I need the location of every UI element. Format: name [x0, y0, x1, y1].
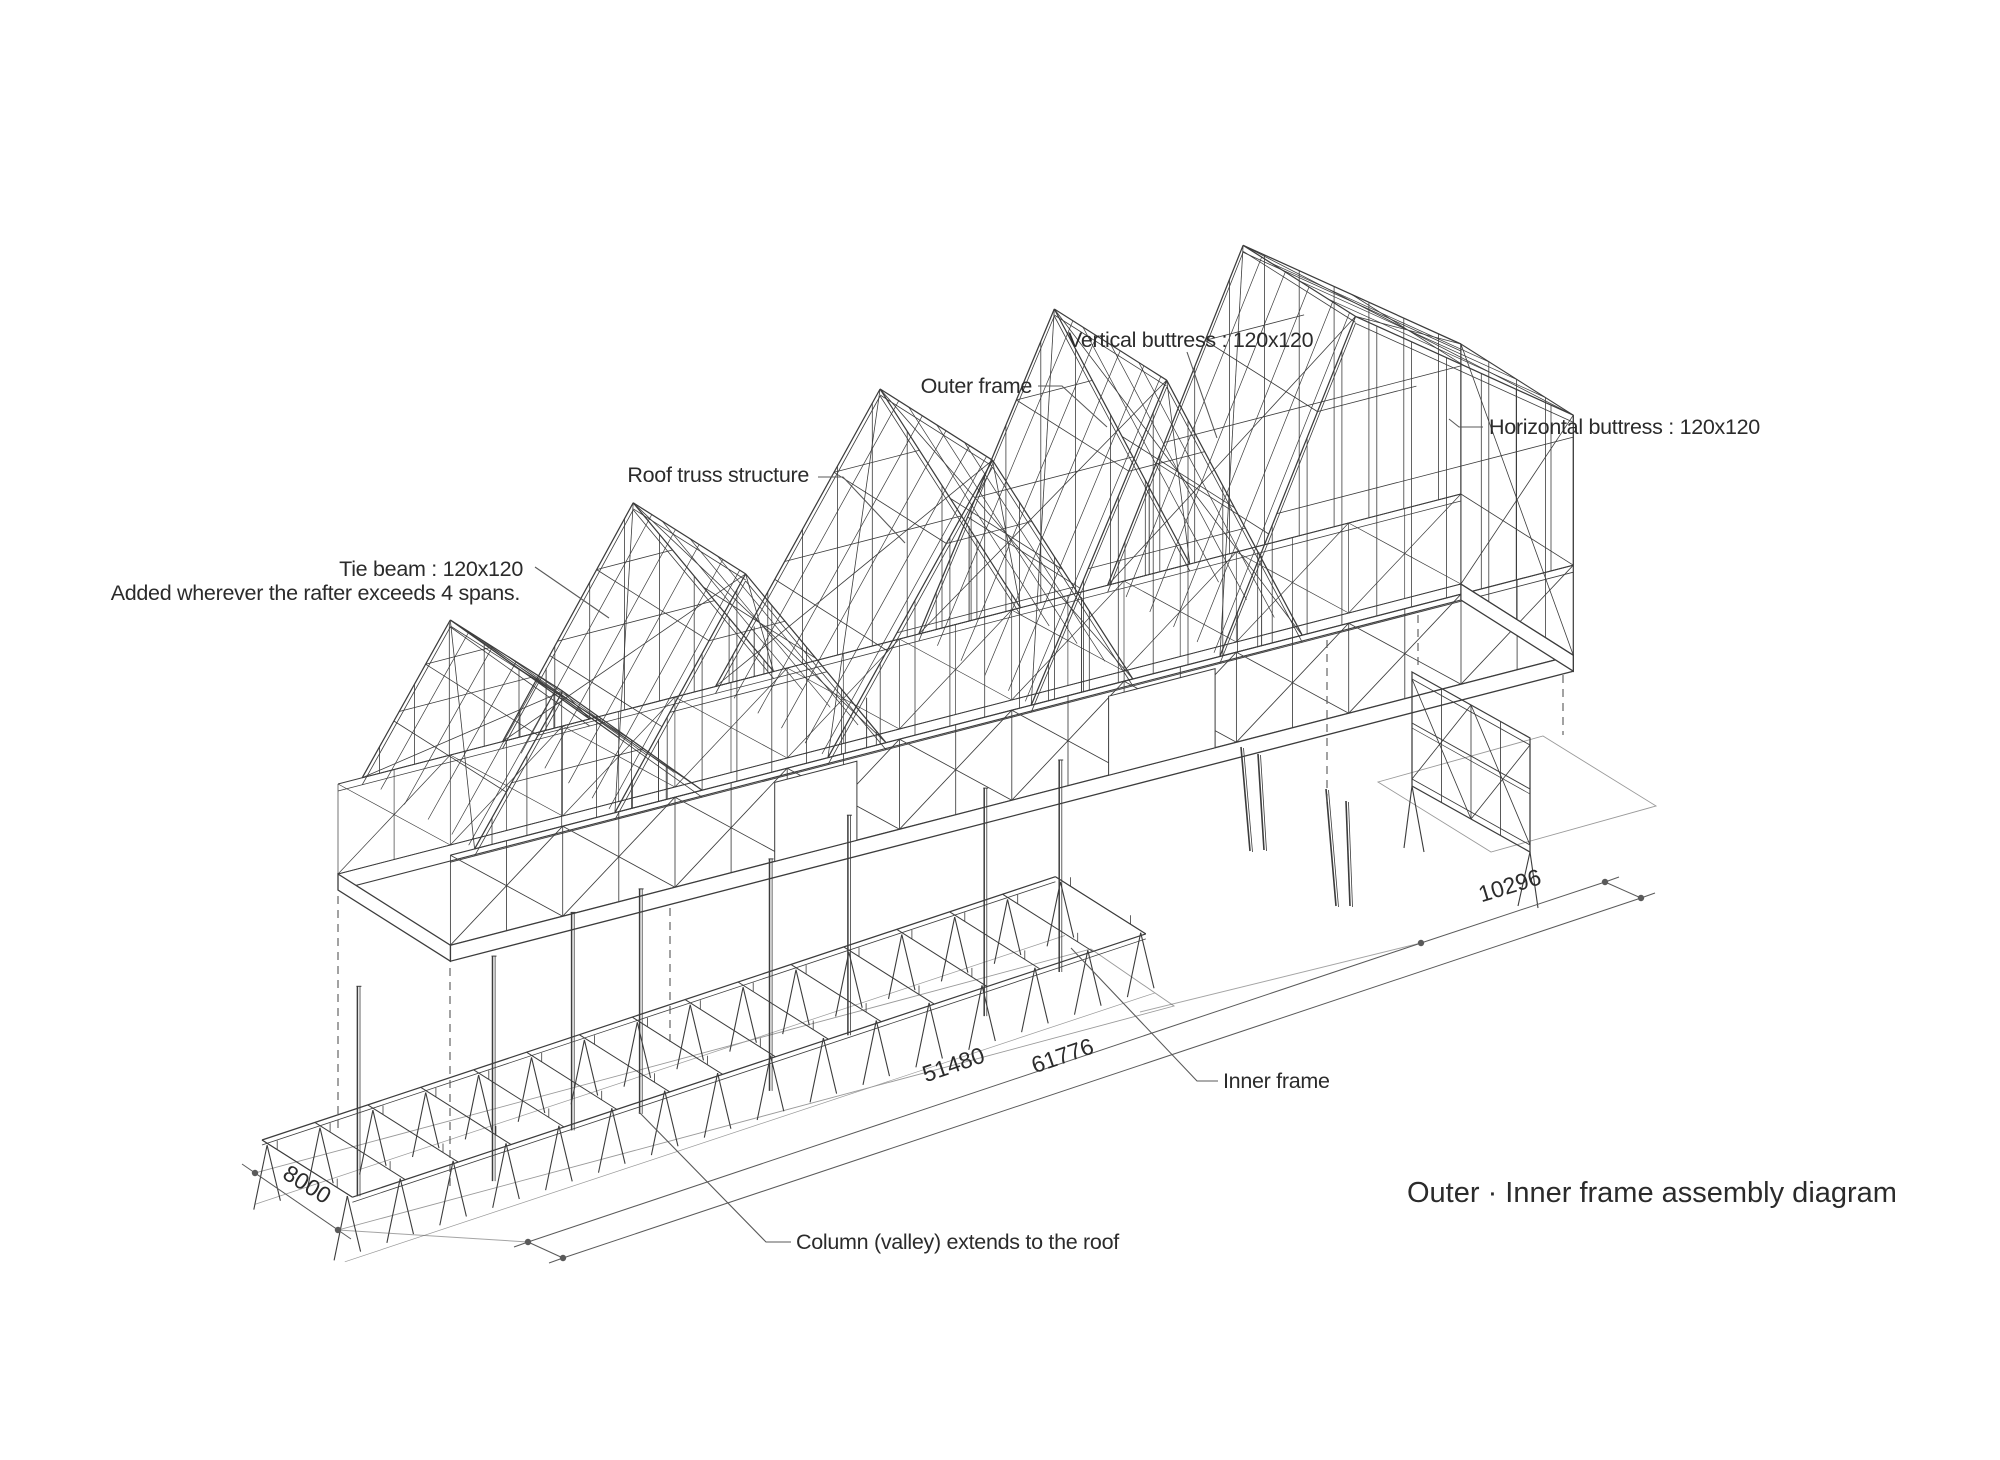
column-valley-leader-line — [639, 1112, 791, 1242]
dim-connector-right — [1605, 882, 1641, 898]
dim-dot — [560, 1255, 566, 1261]
dim-dot — [525, 1239, 531, 1245]
assembly-diagram-canvas: Tie beam : 120x120 Added wherever the ra… — [0, 0, 2000, 1460]
roof-truss-far-faces — [362, 245, 1461, 785]
inner-length-dim-text: 51480 — [919, 1042, 988, 1087]
tie-beam-label-line2: Added wherever the rafter exceeds 4 span… — [111, 581, 520, 605]
horizontal-buttress-label: Horizontal buttress : 120x120 — [1489, 415, 1760, 439]
roof-truss-label: Roof truss structure — [627, 463, 809, 487]
inner-frame-structure — [254, 760, 1156, 1262]
tie-beam-label-line1: Tie beam : 120x120 — [339, 557, 523, 581]
outer-frame-label: Outer frame — [921, 374, 1032, 398]
roof-truss-leader-line — [818, 477, 905, 543]
dim-dot — [1602, 879, 1608, 885]
dim-connector-left — [528, 1242, 563, 1258]
dim-extension-mid — [1140, 943, 1421, 1012]
horizontal-buttress-leader-line — [1449, 419, 1483, 427]
inner-frame-label: Inner frame — [1223, 1069, 1330, 1093]
right-bay-dim-text: 10296 — [1475, 864, 1544, 908]
inner-frame-leader-line — [1071, 948, 1218, 1081]
dim-extension-left — [338, 1230, 528, 1242]
roof-truss-members — [362, 245, 1573, 849]
overall-length-dim-text: 61776 — [1028, 1033, 1097, 1078]
dim-dot — [252, 1170, 258, 1176]
dim-dot — [335, 1227, 341, 1233]
annotation-text: Tie beam : 120x120 Added wherever the ra… — [111, 328, 1897, 1254]
dim-dot — [1418, 940, 1424, 946]
column-valley-label: Column (valley) extends to the roof — [796, 1230, 1119, 1254]
vertical-buttress-label: Vertical buttress : 120x120 — [1068, 328, 1314, 352]
loose-buttress-struts — [1241, 747, 1353, 907]
vertical-buttress-leader-line — [1187, 352, 1217, 438]
diagram-title: Outer · Inner frame assembly diagram — [1407, 1177, 1897, 1209]
dim-dot — [1638, 895, 1644, 901]
width-dim-text: 8000 — [279, 1160, 336, 1209]
